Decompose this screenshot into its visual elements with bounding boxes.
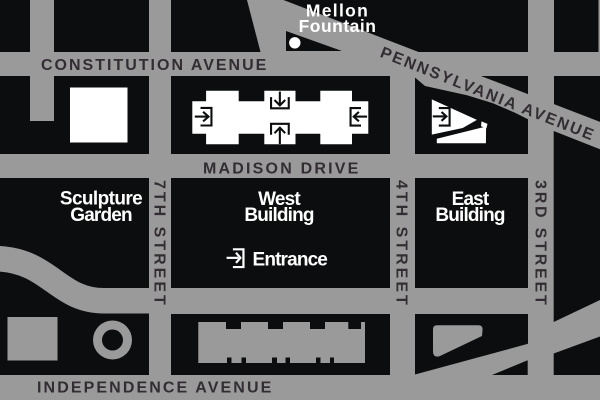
svg-text:CONSTITUTION AVENUE: CONSTITUTION AVENUE: [41, 57, 268, 74]
svg-text:MADISON DRIVE: MADISON DRIVE: [203, 160, 361, 177]
svg-text:Fountain: Fountain: [299, 16, 377, 36]
svg-text:3RD STREET: 3RD STREET: [532, 180, 549, 308]
svg-text:INDEPENDENCE AVENUE: INDEPENDENCE AVENUE: [37, 380, 273, 397]
svg-text:Garden: Garden: [70, 205, 132, 226]
svg-text:Entrance: Entrance: [253, 250, 328, 271]
svg-text:4TH STREET: 4TH STREET: [393, 180, 410, 308]
svg-text:7TH STREET: 7TH STREET: [150, 180, 167, 308]
svg-text:Building: Building: [244, 205, 313, 226]
svg-text:Building: Building: [435, 205, 504, 226]
